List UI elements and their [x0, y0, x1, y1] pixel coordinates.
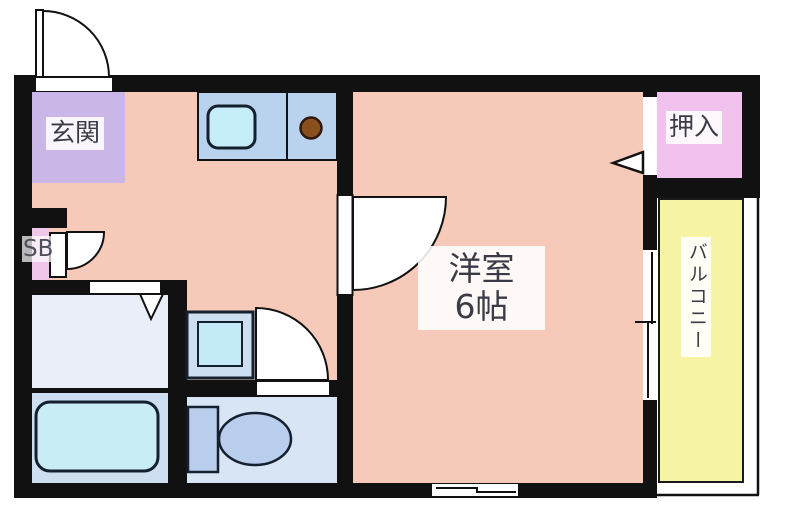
wall-balcony-top	[643, 178, 760, 198]
shoe-box-label: SB	[22, 236, 54, 262]
bottom-sliding-window	[432, 484, 518, 496]
entrance-doorway	[36, 78, 112, 91]
wall-kitchen-lower	[337, 293, 353, 483]
closet-label: 押入	[666, 111, 722, 144]
western-room-label: 洋室 6帖	[418, 246, 545, 330]
western-room-size: 6帖	[418, 288, 545, 326]
bath-divider-wall	[32, 388, 168, 393]
western-room-name: 洋室	[418, 250, 545, 288]
wall-kitchen-upper	[337, 92, 353, 197]
wall-corridor-stub	[32, 208, 67, 228]
room-toilet	[187, 397, 337, 483]
entrance-label: 玄関	[46, 117, 104, 150]
floor-plan: 玄関 押入 洋室 6帖 バルコニー SB	[0, 0, 800, 516]
washroom-doorway	[90, 282, 160, 293]
balcony-sliding-window	[643, 250, 657, 400]
room-washroom	[32, 295, 168, 388]
wall-toilet-top	[186, 380, 337, 397]
balcony-label: バルコニー	[681, 237, 711, 357]
wall-washroom-right	[168, 280, 187, 483]
wall-bottom	[14, 483, 657, 498]
entrance-door-icon	[36, 10, 109, 77]
wall-top	[14, 75, 760, 92]
closet-sliding-door	[643, 97, 657, 175]
room-bathroom	[32, 393, 168, 483]
